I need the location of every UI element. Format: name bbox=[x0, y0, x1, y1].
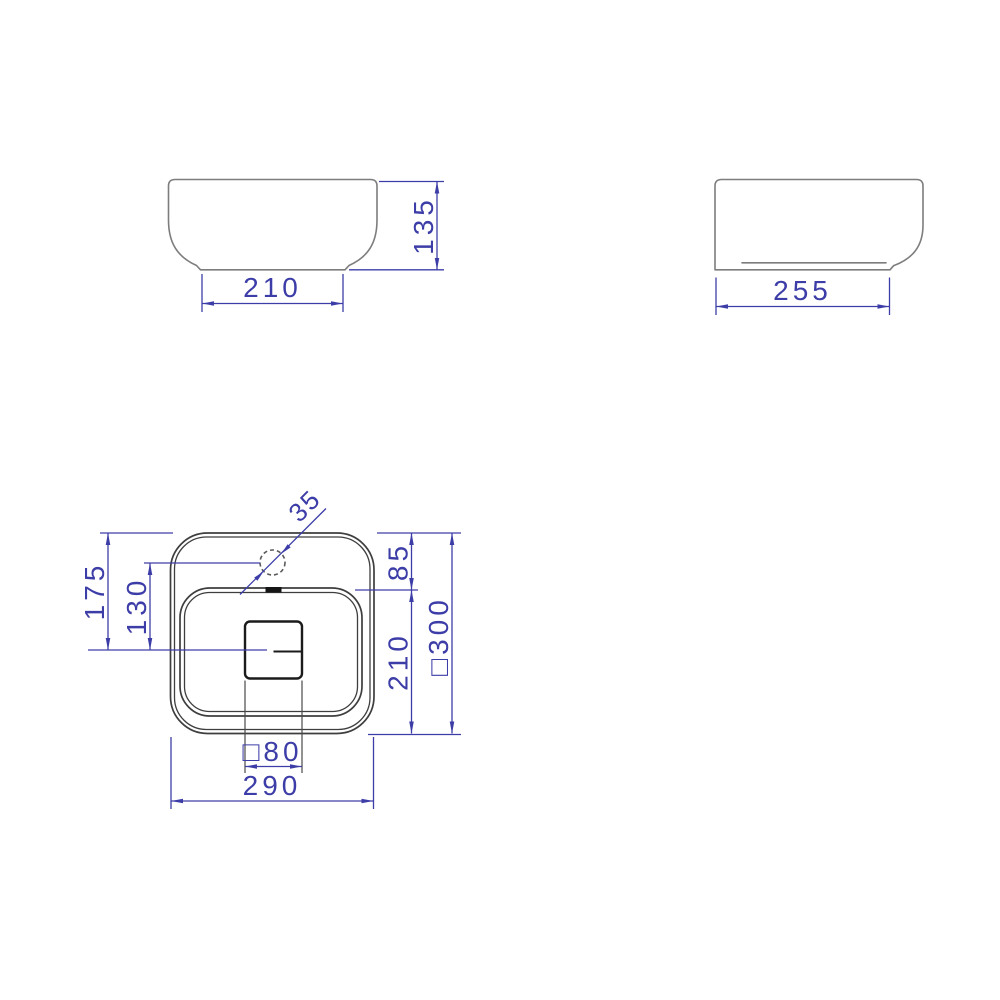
overflow-slot bbox=[266, 587, 282, 593]
front-height-label: 135 bbox=[408, 196, 439, 255]
plan-view: 175 130 85 210 □300 bbox=[79, 483, 461, 809]
basin-depth-label: 210 bbox=[383, 632, 414, 691]
technical-drawing: 135 210 255 bbox=[0, 0, 1000, 1000]
dimension-deck-depth: 85 bbox=[383, 533, 414, 590]
center-from-back-label: 175 bbox=[79, 562, 110, 621]
front-view-outline bbox=[169, 180, 378, 270]
dimension-faucet-to-center: 130 bbox=[121, 563, 152, 650]
front-view: 135 210 bbox=[169, 180, 445, 313]
side-view: 255 bbox=[715, 180, 923, 316]
drain-square-label: □80 bbox=[242, 736, 302, 767]
plan-outer-rim-inner-edge bbox=[175, 537, 371, 730]
side-depth-label: 255 bbox=[773, 275, 832, 306]
plan-basin bbox=[180, 588, 362, 716]
dimension-faucet-diameter: 35 bbox=[240, 483, 327, 594]
overall-square-label: □300 bbox=[423, 596, 454, 676]
dimension-center-from-back: 175 bbox=[79, 533, 110, 650]
faucet-to-center-label: 130 bbox=[121, 577, 152, 636]
faucet-diameter-label: 35 bbox=[282, 483, 326, 527]
front-base-width-label: 210 bbox=[243, 272, 302, 303]
dimension-overall-square: □300 bbox=[423, 533, 454, 734]
dimension-drain-square: □80 bbox=[242, 681, 302, 774]
overall-width-label: 290 bbox=[243, 770, 302, 801]
deck-depth-label: 85 bbox=[383, 542, 414, 581]
drawing-canvas: 135 210 255 bbox=[0, 0, 1000, 1000]
side-view-outline bbox=[715, 180, 923, 270]
dimension-side-depth: 255 bbox=[716, 275, 890, 315]
plan-basin-inner-edge bbox=[185, 593, 358, 712]
dimension-basin-depth: 210 bbox=[383, 590, 414, 734]
dimension-front-base-width: 210 bbox=[202, 272, 343, 312]
